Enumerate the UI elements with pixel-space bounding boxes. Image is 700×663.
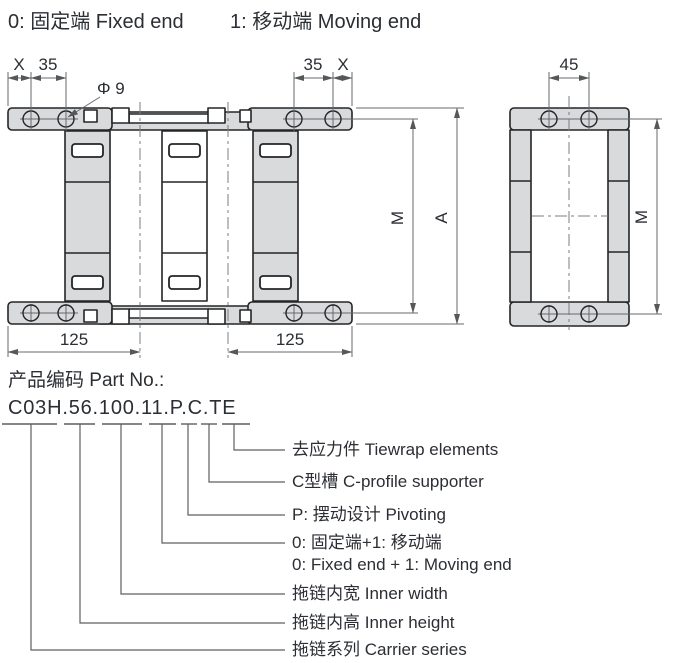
dim-hole-diameter: Φ 9 bbox=[97, 79, 125, 98]
dim-m-side: M bbox=[632, 210, 651, 224]
callout-line-inner-height bbox=[80, 424, 285, 623]
callout-inner-height: 拖链内高 Inner height bbox=[292, 613, 455, 632]
bottom-link-strip bbox=[129, 309, 209, 318]
callout-line-series bbox=[31, 424, 285, 650]
notch bbox=[208, 108, 225, 123]
link-plate-middle bbox=[162, 131, 207, 301]
callout-pivoting: P: 摆动设计 Pivoting bbox=[292, 505, 446, 524]
dim-x-left: X bbox=[13, 55, 24, 74]
notch bbox=[240, 310, 251, 322]
callout-line-tiewrap bbox=[234, 424, 285, 450]
notch bbox=[84, 110, 97, 122]
catalog-diagram-page: 0: 固定端 Fixed end 1: 移动端 Moving end bbox=[0, 0, 700, 663]
notch bbox=[84, 310, 97, 322]
technical-drawing: 0: 固定端 Fixed end 1: 移动端 Moving end bbox=[0, 0, 700, 663]
legend-header: 0: 固定端 Fixed end 1: 移动端 Moving end bbox=[8, 10, 421, 33]
side-view-dimensions: 45 M bbox=[549, 55, 657, 314]
dim-35-right: 35 bbox=[304, 55, 323, 74]
callout-labels: 去应力件 Tiewrap elements C型槽 C-profile supp… bbox=[292, 440, 512, 659]
callout-lines bbox=[31, 424, 285, 650]
top-link-strip bbox=[129, 114, 209, 123]
notch bbox=[208, 309, 225, 324]
tiewrap-slot bbox=[260, 276, 291, 289]
callout-end-type-cn: 0: 固定端+1: 移动端 bbox=[292, 533, 442, 552]
legend-fixed-end: 0: 固定端 Fixed end bbox=[8, 10, 184, 33]
callout-inner-width: 拖链内宽 Inner width bbox=[292, 584, 448, 603]
notch bbox=[112, 108, 129, 123]
dim-35-left: 35 bbox=[39, 55, 58, 74]
dim-45: 45 bbox=[560, 55, 579, 74]
callout-tiewrap: 去应力件 Tiewrap elements bbox=[292, 440, 498, 459]
callout-cprofile: C型槽 C-profile supporter bbox=[292, 472, 484, 491]
tiewrap-slot bbox=[169, 276, 200, 289]
dim-125-right: 125 bbox=[276, 330, 304, 349]
link-plate-left bbox=[65, 131, 110, 301]
side-column-left bbox=[510, 130, 531, 302]
dim-x-right: X bbox=[337, 55, 348, 74]
callout-line-end-type bbox=[162, 424, 285, 543]
dim-125-left: 125 bbox=[60, 330, 88, 349]
dim-a-main: A bbox=[432, 212, 451, 224]
tiewrap-slot bbox=[260, 144, 291, 157]
part-no-code: C03H.56.100.11.P.C.TE bbox=[8, 397, 236, 419]
dim-m-main: M bbox=[388, 211, 407, 225]
link-plate-right bbox=[253, 131, 298, 301]
tiewrap-slot bbox=[72, 276, 103, 289]
tiewrap-slot bbox=[72, 144, 103, 157]
callout-series: 拖链系列 Carrier series bbox=[292, 640, 467, 659]
part-number-section: 产品编码 Part No.: C03H.56.100.11.P.C.TE 去应力… bbox=[2, 369, 512, 659]
main-top-view bbox=[8, 102, 418, 358]
callout-end-type-en: 0: Fixed end + 1: Moving end bbox=[292, 555, 512, 574]
tiewrap-slot bbox=[169, 144, 200, 157]
side-column-right bbox=[608, 130, 629, 302]
legend-moving-end: 1: 移动端 Moving end bbox=[230, 10, 421, 33]
callout-line-cprofile bbox=[209, 424, 285, 482]
notch bbox=[112, 309, 129, 324]
part-no-title: 产品编码 Part No.: bbox=[8, 369, 164, 391]
notch bbox=[240, 110, 251, 122]
callout-line-pivoting bbox=[188, 424, 285, 515]
